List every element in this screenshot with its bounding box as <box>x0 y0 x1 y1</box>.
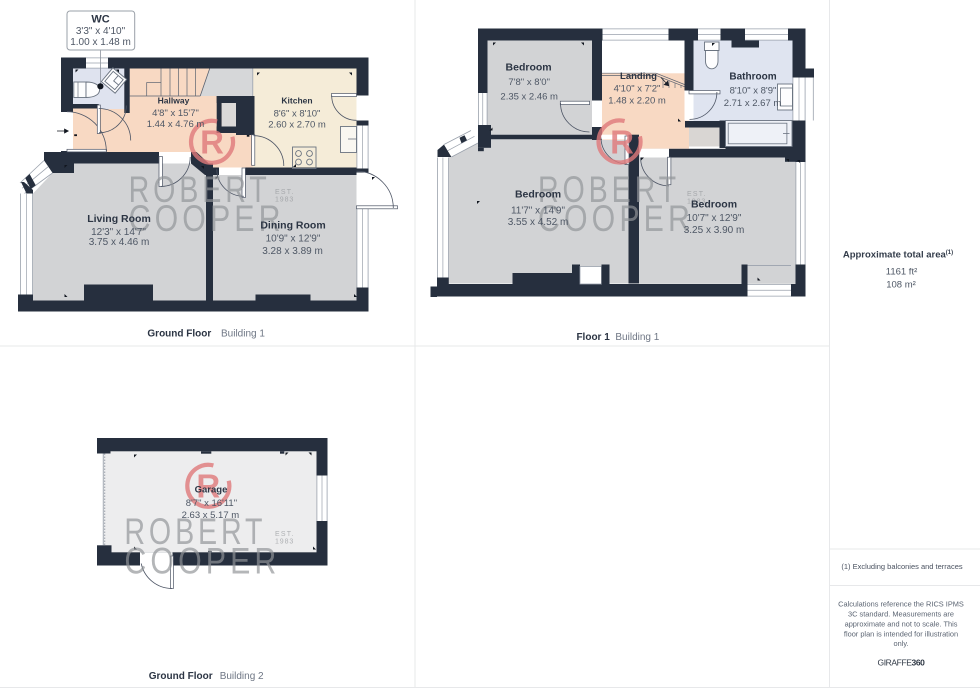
svg-text:8'7" x 16'11": 8'7" x 16'11" <box>186 498 237 509</box>
svg-text:Ground Floor: Ground Floor <box>147 329 211 340</box>
svg-text:8'10" x 8'9": 8'10" x 8'9" <box>730 85 777 96</box>
svg-text:1983: 1983 <box>275 197 294 204</box>
svg-text:2.60 x 2.70 m: 2.60 x 2.70 m <box>268 120 326 131</box>
svg-text:1.48 x 2.20 m: 1.48 x 2.20 m <box>608 96 666 107</box>
svg-text:Calculations reference the RIC: Calculations reference the RICS IPMS <box>838 600 964 609</box>
svg-text:108 m²: 108 m² <box>886 279 916 290</box>
svg-text:3'3" x 4'10": 3'3" x 4'10" <box>76 26 126 37</box>
svg-text:EST.: EST. <box>275 189 295 196</box>
svg-text:1.00 x 1.48 m: 1.00 x 1.48 m <box>70 37 131 48</box>
svg-text:Landing: Landing <box>620 71 657 82</box>
svg-text:Bedroom: Bedroom <box>506 62 552 74</box>
svg-text:GIRAFFE360: GIRAFFE360 <box>877 658 925 668</box>
svg-text:(1) Excluding balconies and te: (1) Excluding balconies and terraces <box>841 562 963 571</box>
svg-text:4'8" x 15'7": 4'8" x 15'7" <box>152 108 199 119</box>
svg-text:10'7" x 12'9": 10'7" x 12'9" <box>687 213 742 224</box>
svg-text:Garage: Garage <box>195 485 228 496</box>
svg-text:1161 ft²: 1161 ft² <box>886 266 918 277</box>
svg-text:Kitchen: Kitchen <box>281 96 312 106</box>
svg-text:Ground Floor: Ground Floor <box>149 671 213 682</box>
svg-text:only.: only. <box>893 639 908 648</box>
svg-text:3C standard. Measurements are: 3C standard. Measurements are <box>848 610 954 619</box>
svg-text:2.35 x 2.46 m: 2.35 x 2.46 m <box>500 91 558 102</box>
svg-text:3.25 x 3.90 m: 3.25 x 3.90 m <box>684 225 745 236</box>
svg-text:4'10" x 7'2": 4'10" x 7'2" <box>614 83 661 94</box>
svg-text:R: R <box>610 123 634 160</box>
svg-text:Bedroom: Bedroom <box>691 199 737 211</box>
svg-text:EST.: EST. <box>687 191 707 198</box>
svg-text:Floor 1: Floor 1 <box>576 332 610 343</box>
svg-text:Building 1: Building 1 <box>221 329 265 340</box>
svg-text:10'9" x 12'9": 10'9" x 12'9" <box>266 234 321 245</box>
svg-text:Bathroom: Bathroom <box>729 72 776 83</box>
svg-text:Bedroom: Bedroom <box>515 189 561 201</box>
svg-text:Building 1: Building 1 <box>615 332 659 343</box>
svg-text:Living Room: Living Room <box>87 213 151 225</box>
svg-text:7'8" x 8'0": 7'8" x 8'0" <box>508 77 550 88</box>
svg-text:3.75 x 4.46 m: 3.75 x 4.46 m <box>89 237 150 248</box>
svg-text:Building 2: Building 2 <box>220 671 264 682</box>
svg-text:approximate and not to scale.: approximate and not to scale. This <box>845 619 958 628</box>
svg-text:COOPER: COOPER <box>124 541 280 582</box>
svg-text:11'7" x 14'9": 11'7" x 14'9" <box>511 205 566 216</box>
svg-text:3.28 x 3.89 m: 3.28 x 3.89 m <box>262 246 323 257</box>
svg-text:Hallway: Hallway <box>158 96 190 106</box>
svg-text:COOPER: COOPER <box>129 198 285 239</box>
svg-text:1.44 x 4.76 m: 1.44 x 4.76 m <box>147 119 205 130</box>
svg-text:floor plan is intended for ill: floor plan is intended for illustration <box>844 629 958 638</box>
svg-text:Approximate total area(1): Approximate total area(1) <box>843 250 953 261</box>
svg-text:EST.: EST. <box>275 531 295 538</box>
svg-text:2.71 x 2.67 m: 2.71 x 2.67 m <box>724 98 782 109</box>
svg-text:8'6" x 8'10": 8'6" x 8'10" <box>274 109 321 120</box>
svg-text:WC: WC <box>91 13 109 25</box>
svg-text:1983: 1983 <box>275 539 294 546</box>
svg-text:3.55 x 4.52 m: 3.55 x 4.52 m <box>508 217 569 228</box>
svg-text:2.63 x 5.17 m: 2.63 x 5.17 m <box>182 510 240 521</box>
svg-text:Dining Room: Dining Room <box>260 220 325 232</box>
